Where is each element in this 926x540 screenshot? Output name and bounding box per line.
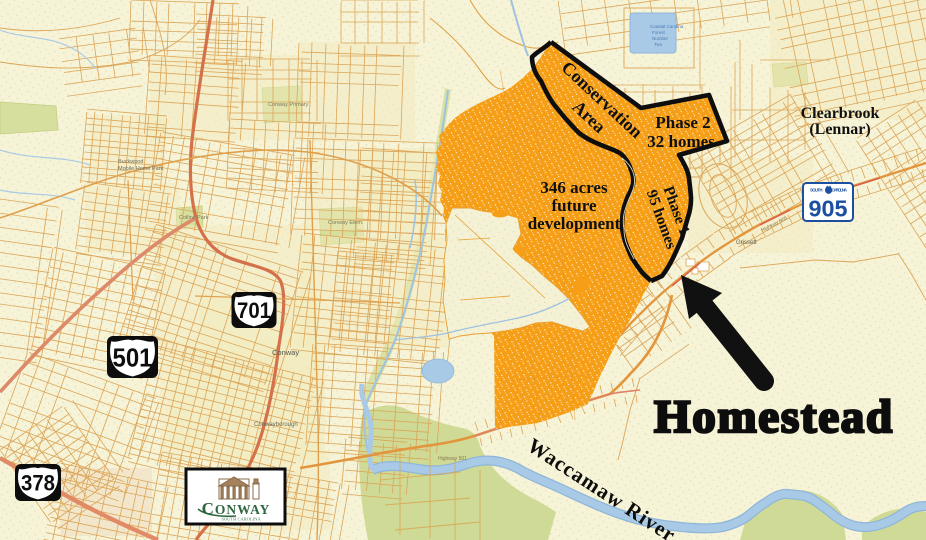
svg-text:501: 501 bbox=[113, 342, 153, 372]
svg-text:346 acres: 346 acres bbox=[540, 178, 608, 197]
svg-text:Phase 2: Phase 2 bbox=[655, 113, 710, 132]
svg-text:development: development bbox=[528, 214, 621, 233]
svg-text:SOUTH: SOUTH bbox=[810, 188, 823, 193]
svg-text:SOUTH CAROLINA: SOUTH CAROLINA bbox=[221, 517, 261, 522]
svg-text:Homestead: Homestead bbox=[654, 391, 894, 443]
svg-text:Conway: Conway bbox=[272, 348, 299, 357]
svg-text:Clearbrook: Clearbrook bbox=[801, 105, 880, 122]
svg-text:Forest: Forest bbox=[652, 30, 666, 35]
svg-text:Conway Elem.: Conway Elem. bbox=[328, 220, 364, 226]
svg-text:(Lennar): (Lennar) bbox=[809, 121, 870, 138]
svg-text:32 homes: 32 homes bbox=[647, 132, 715, 151]
svg-text:Buckwood: Buckwood bbox=[118, 159, 143, 165]
svg-text:378: 378 bbox=[21, 470, 55, 495]
svg-text:Collins Park: Collins Park bbox=[179, 215, 209, 221]
svg-text:Two: Two bbox=[654, 42, 663, 47]
svg-text:Number: Number bbox=[652, 36, 669, 41]
svg-text:Mobile Home Park: Mobile Home Park bbox=[118, 166, 163, 172]
svg-text:Grissett: Grissett bbox=[736, 240, 757, 246]
svg-text:Conway Primary: Conway Primary bbox=[268, 102, 309, 108]
svg-text:701: 701 bbox=[237, 298, 271, 323]
svg-text:Conwayborough: Conwayborough bbox=[254, 422, 298, 428]
svg-text:Coastal Carolina: Coastal Carolina bbox=[650, 24, 684, 29]
svg-text:905: 905 bbox=[809, 196, 848, 222]
svg-text:Highway 501: Highway 501 bbox=[438, 456, 467, 462]
svg-text:CAROLINA: CAROLINA bbox=[832, 188, 848, 193]
svg-text:future: future bbox=[551, 196, 596, 215]
